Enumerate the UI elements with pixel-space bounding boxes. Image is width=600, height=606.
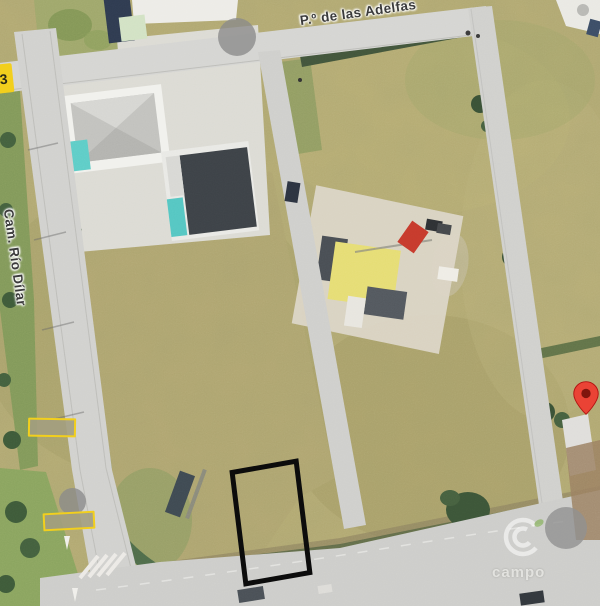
street-sign-edge-label: 3: [0, 70, 8, 87]
redacted-sign-box-2: [43, 511, 96, 532]
location-pin-icon[interactable]: [572, 381, 600, 415]
pin-glyph: [572, 381, 600, 415]
plot-highlight-outline[interactable]: [229, 458, 312, 586]
agency-watermark: campo: [486, 514, 600, 586]
watermark-logo-icon: [500, 514, 546, 560]
watermark-text: campo: [492, 564, 545, 581]
redacted-sign-box-1: [28, 418, 76, 438]
censor-circle-top: [218, 18, 256, 56]
satellite-map-canvas[interactable]: P.º de las Adelfas Cam. Río Dílar 3 camp…: [0, 0, 600, 606]
